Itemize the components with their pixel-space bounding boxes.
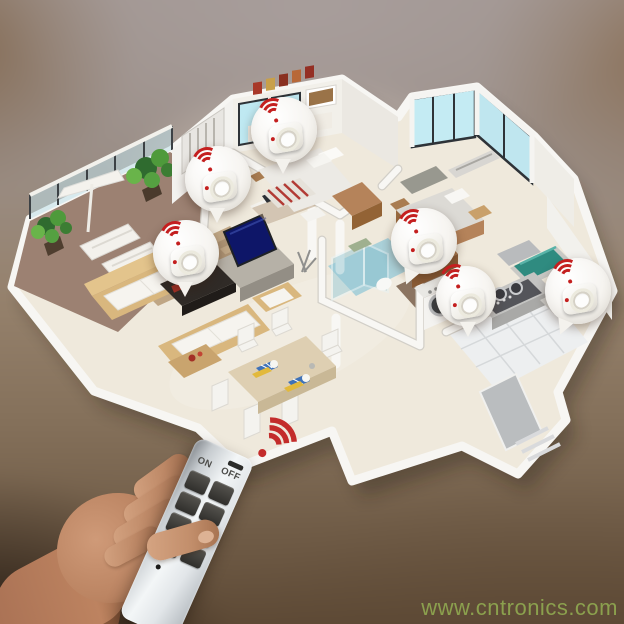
promo-image: ON OFF www.cntronics.com (0, 0, 624, 624)
remote-on-label: ON (195, 455, 213, 471)
remote-button (174, 490, 202, 516)
device-callout-2 (185, 146, 251, 212)
watermark-url: www.cntronics.com (421, 595, 618, 621)
device-callout-1 (251, 97, 317, 163)
remote-button (207, 480, 235, 506)
device-callout-5 (436, 266, 496, 326)
smart-socket-icon (562, 282, 598, 316)
smart-socket-icon (170, 244, 206, 278)
device-callout-6 (545, 258, 611, 324)
remote-led (155, 564, 162, 571)
smart-socket-icon (268, 121, 304, 155)
device-callout-3 (153, 220, 219, 286)
smart-socket-icon (408, 232, 444, 266)
smart-socket-icon (450, 287, 486, 321)
remote-button (183, 469, 211, 495)
device-callout-4 (391, 208, 457, 274)
floor-plan (0, 0, 624, 624)
smart-socket-icon (202, 170, 238, 204)
